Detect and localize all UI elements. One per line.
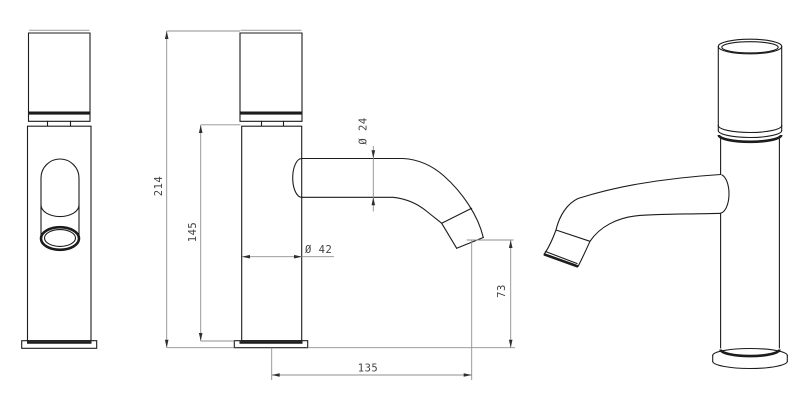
perspective-base-flange (713, 349, 788, 369)
side-body (242, 126, 302, 341)
dimension-annotations: 214 145 Ø 42 Ø 24 (153, 31, 515, 380)
dim-label-overall-height: 214 (153, 176, 165, 196)
dim-outlet-height: 73 (467, 240, 514, 348)
side-handle-cap (240, 30, 302, 121)
faucet-drawing-canvas: 214 145 Ø 42 Ø 24 (0, 0, 800, 409)
technical-drawing-page: 214 145 Ø 42 Ø 24 (0, 0, 800, 409)
dim-label-body-diameter: Ø 42 (305, 244, 332, 256)
front-stem-ticks (48, 121, 71, 126)
dim-body-height: 145 (187, 125, 241, 341)
perspective-body (721, 139, 780, 348)
dim-overall-height: 214 (153, 31, 240, 348)
perspective-view (544, 39, 787, 368)
side-spout (293, 159, 484, 249)
dim-label-spout-diameter: Ø 24 (358, 117, 370, 144)
front-handle-cap (29, 30, 91, 121)
front-view (22, 30, 97, 348)
dim-label-outlet-height: 73 (496, 284, 508, 298)
perspective-handle-cap (718, 39, 781, 142)
side-view (234, 30, 483, 347)
front-base-flange (22, 341, 97, 349)
side-stem-ticks (262, 121, 284, 126)
dim-label-body-height: 145 (187, 222, 199, 242)
perspective-spout (544, 175, 729, 267)
side-base-flange (234, 341, 307, 348)
front-body (28, 126, 92, 341)
dim-label-spout-reach: 135 (358, 363, 378, 375)
